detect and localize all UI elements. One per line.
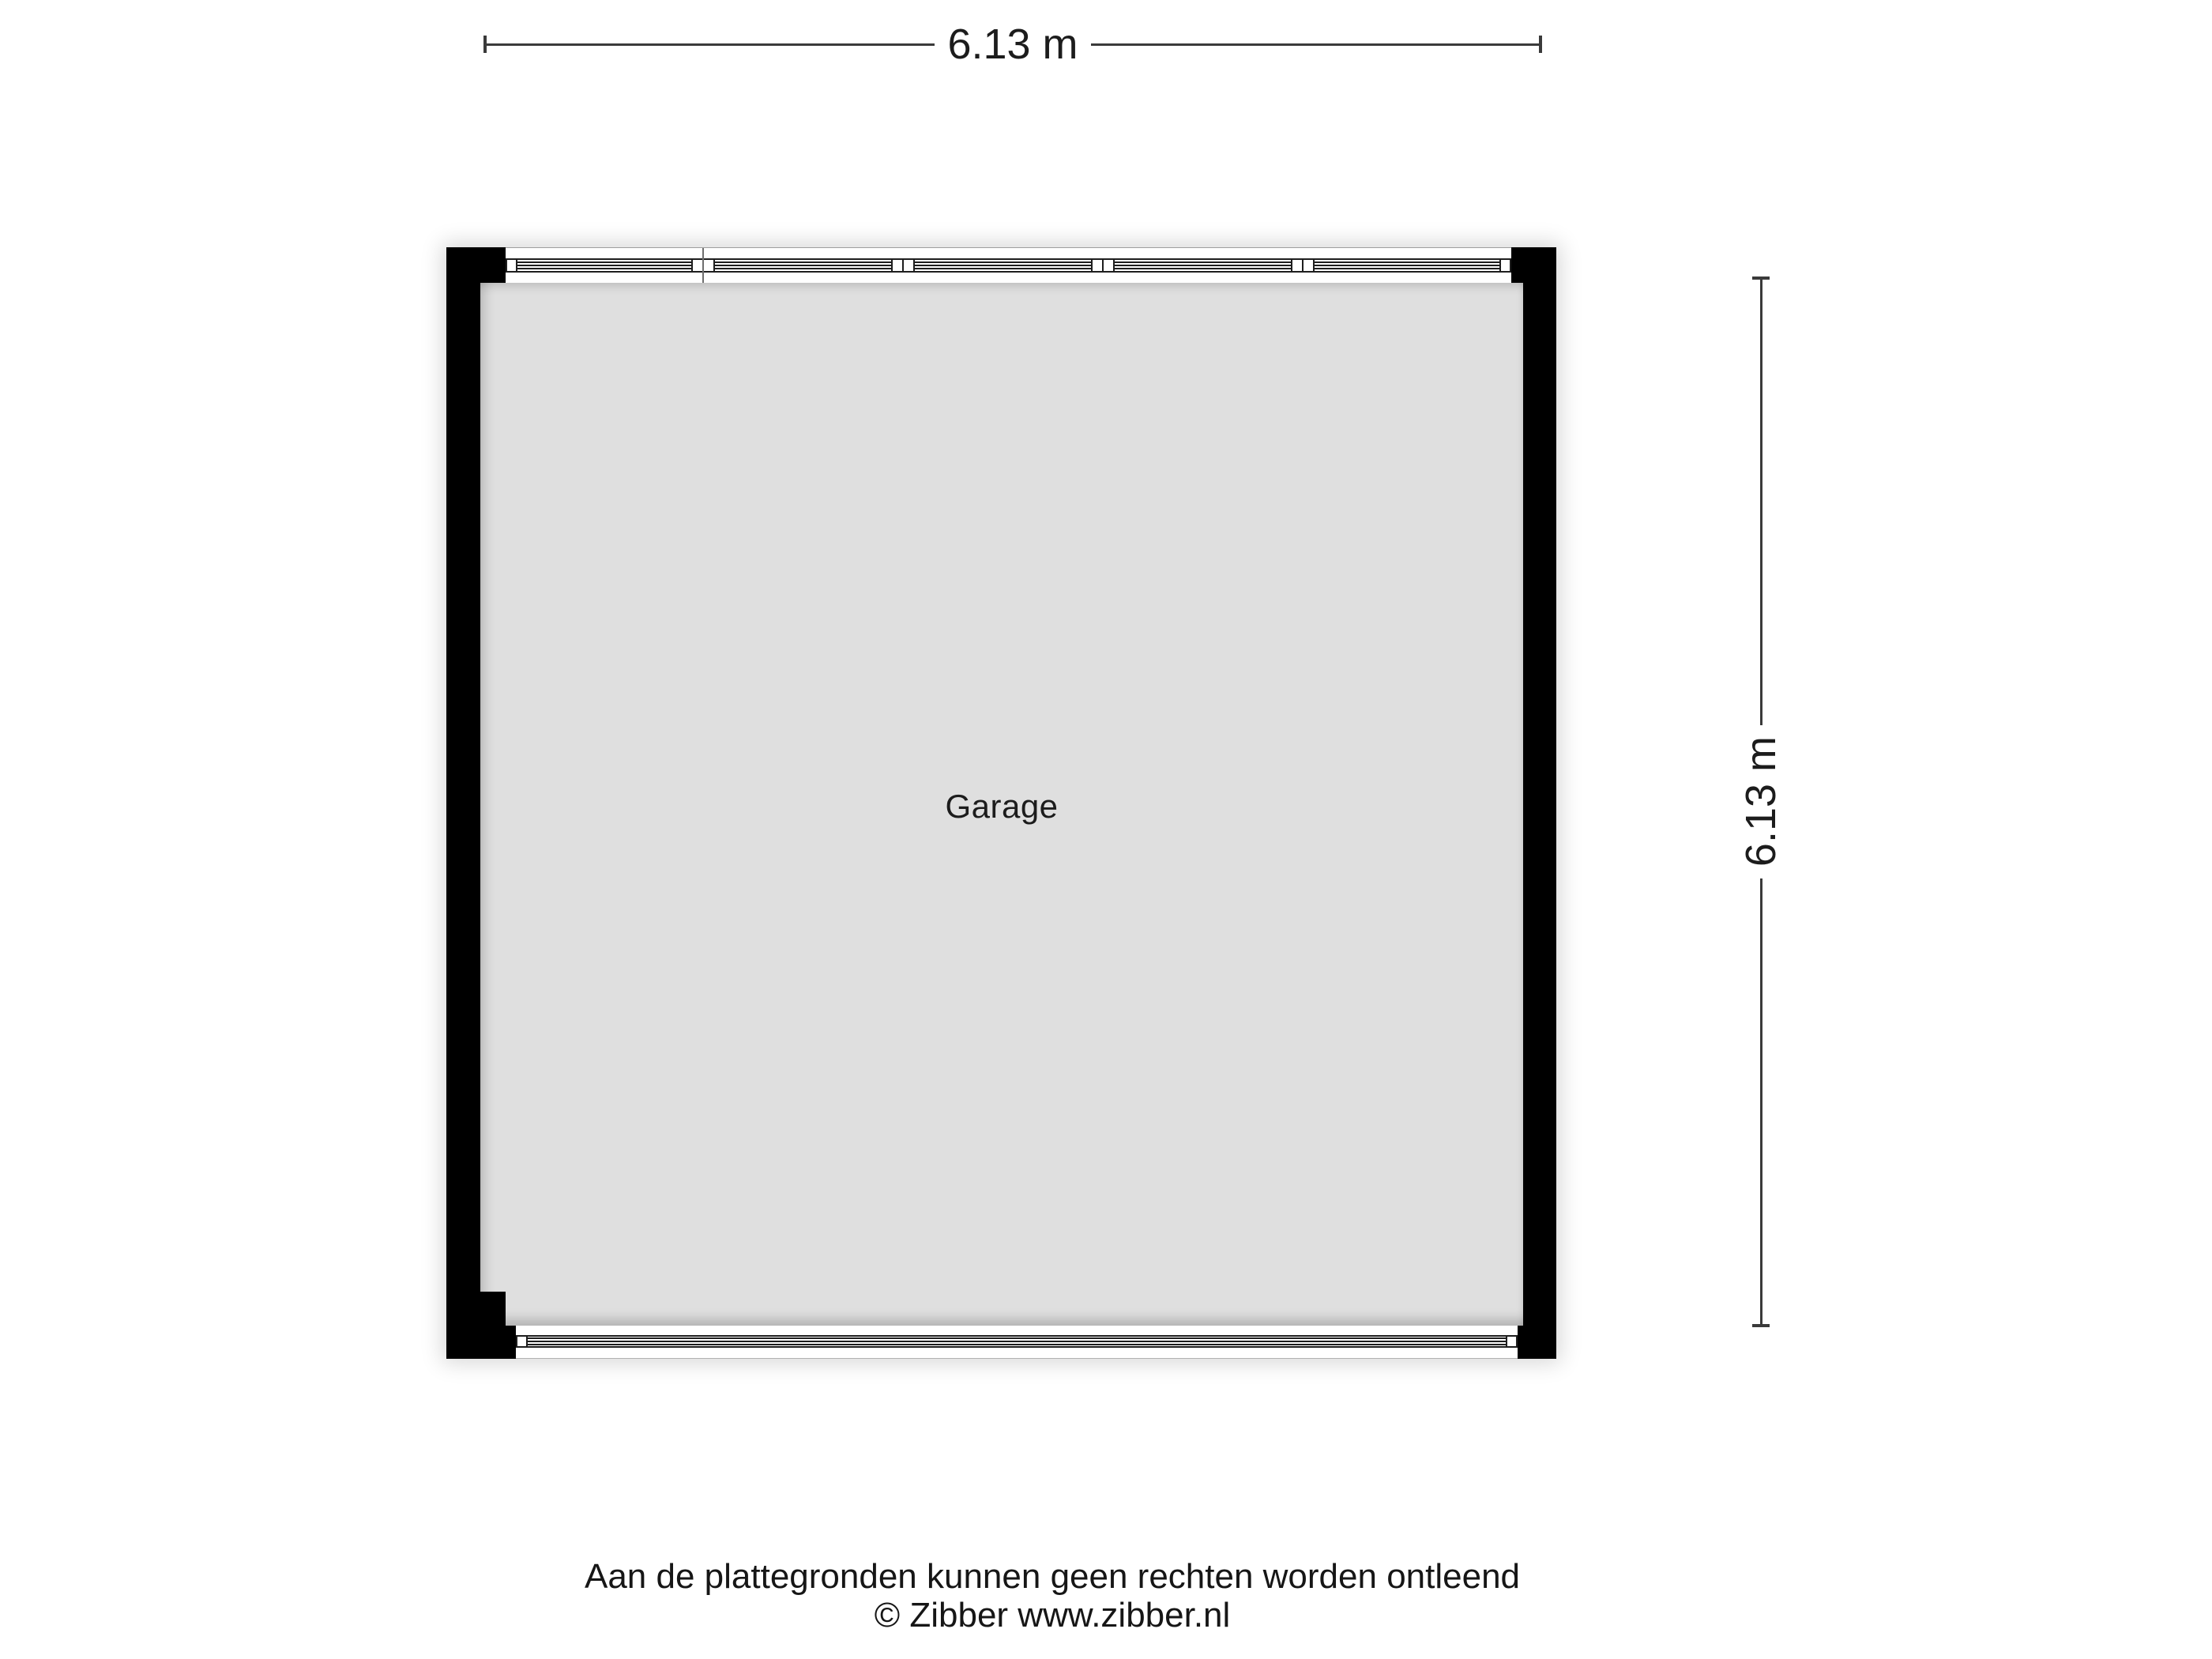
dimension-tick-bottom [1752, 1324, 1770, 1327]
dimension-line-segment [1760, 280, 1762, 725]
wall-left [446, 247, 480, 1359]
window-glazing [506, 261, 1511, 269]
footer-disclaimer: Aan de plattegronden kunnen geen rechten… [0, 1557, 2105, 1596]
dimension-tick-right [1539, 36, 1542, 53]
window-mullion-line [902, 260, 904, 271]
window-glazing-line [506, 265, 1511, 266]
window-mullion-line [1302, 260, 1303, 271]
dimension-right: 6.13 m [1744, 276, 1778, 1327]
window-top [506, 258, 1511, 273]
wall-corner-top-left [446, 247, 506, 283]
window-end-frame [1506, 1337, 1518, 1346]
window-end-frame [506, 260, 517, 271]
dimension-line-segment [1091, 43, 1539, 46]
dimension-line-segment [487, 43, 935, 46]
floor-plan: Garage [446, 247, 1556, 1359]
window-end-frame [516, 1337, 528, 1346]
wall-band-bottom [516, 1326, 1518, 1359]
window-glazing [516, 1337, 1518, 1345]
dimension-right-label: 6.13 m [1740, 725, 1782, 878]
dimension-line-segment [1760, 878, 1762, 1324]
room-label: Garage [480, 786, 1523, 827]
window-end-frame [1499, 260, 1511, 271]
dimension-top-label: 6.13 m [935, 23, 1090, 66]
dimension-top: 6.13 m [483, 25, 1542, 63]
footer-copyright: © Zibber www.zibber.nl [0, 1596, 2105, 1635]
window-mullion [1291, 260, 1315, 271]
wall-corner-bottom-right [1518, 1326, 1556, 1359]
wall-band-top [506, 247, 1511, 283]
window-bottom [516, 1335, 1518, 1348]
footer: Aan de plattegronden kunnen geen rechten… [0, 1557, 2105, 1635]
window-mullion [1091, 260, 1115, 271]
wall-corner-top-right [1511, 247, 1556, 283]
wall-right [1523, 247, 1556, 1359]
wall-corner-bottom-left-step [446, 1326, 516, 1359]
floorplan-page: 6.13 m [0, 0, 2212, 1659]
window-glazing-line [516, 1341, 1518, 1342]
window-mullion [891, 260, 915, 271]
window-unit-separator [702, 248, 704, 283]
window-mullion-line [1102, 260, 1104, 271]
